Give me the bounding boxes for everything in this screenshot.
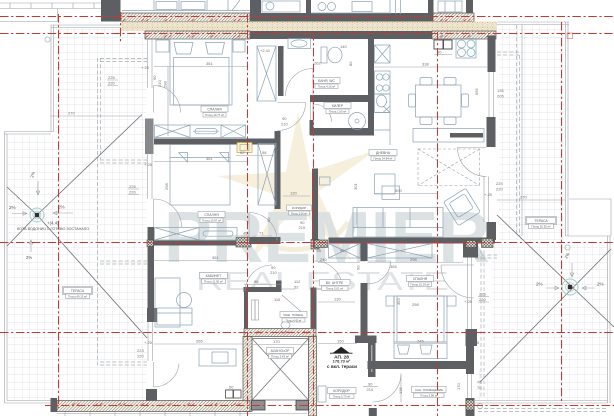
svg-text:210: 210 <box>299 225 306 230</box>
svg-text:270: 270 <box>520 195 527 200</box>
svg-text:+.25: +.25 <box>141 65 150 70</box>
svg-text:500: 500 <box>395 188 402 193</box>
svg-text:135: 135 <box>497 88 504 93</box>
svg-text:70: 70 <box>477 385 482 390</box>
svg-text:170: 170 <box>273 339 280 344</box>
svg-text:301: 301 <box>353 183 358 190</box>
svg-text:298: 298 <box>163 81 168 88</box>
svg-text:210: 210 <box>270 270 277 275</box>
svg-text:220: 220 <box>137 354 144 359</box>
svg-text:150: 150 <box>337 339 344 344</box>
svg-text:+.25: +.25 <box>144 340 153 345</box>
svg-text:ТЕРАСА: ТЕРАСА <box>534 219 548 223</box>
svg-text:2%: 2% <box>26 255 32 260</box>
svg-text:90: 90 <box>266 217 271 222</box>
svg-text:СПАЛНЯ: СПАЛНЯ <box>413 277 428 281</box>
svg-text:262: 262 <box>314 61 321 66</box>
svg-text:223: 223 <box>137 348 144 353</box>
svg-text:62: 62 <box>240 150 245 155</box>
svg-text:МАШ. ПОМЕЩ.: МАШ. ПОМЕЩ. <box>283 313 303 317</box>
svg-text:135: 135 <box>398 387 403 394</box>
svg-text:353: 353 <box>396 298 401 305</box>
svg-text:ДНЕВНА: ДНЕВНА <box>376 151 391 155</box>
svg-text:КИЛЕР: КИЛЕР <box>332 104 344 108</box>
svg-text:245: 245 <box>417 339 424 344</box>
svg-text:90: 90 <box>368 382 373 387</box>
svg-text:ВХ. АНТРЕ: ВХ. АНТРЕ <box>326 281 344 285</box>
svg-text:205: 205 <box>497 94 504 99</box>
svg-text:САН. ПОМЕЩЕНИЕ: САН. ПОМЕЩЕНИЕ <box>415 388 443 392</box>
svg-text:+.25: +.25 <box>464 299 473 304</box>
svg-text:+.25: +.25 <box>484 192 493 197</box>
svg-text:225: 225 <box>496 181 503 186</box>
svg-text:96: 96 <box>254 279 259 284</box>
svg-text:с вкл. тераси: с вкл. тераси <box>327 364 357 369</box>
svg-text:45: 45 <box>317 248 322 253</box>
svg-text:225: 225 <box>129 184 136 189</box>
svg-text:220: 220 <box>108 81 115 86</box>
svg-text:220: 220 <box>479 297 486 302</box>
svg-text:298: 298 <box>164 183 169 190</box>
svg-text:2%: 2% <box>597 282 604 287</box>
svg-text:25: 25 <box>475 340 480 345</box>
svg-text:270: 270 <box>68 111 75 116</box>
svg-text:Площ 4.15 м²: Площ 4.15 м² <box>318 85 335 89</box>
svg-text:Площ 24.84 м²: Площ 24.84 м² <box>374 157 393 161</box>
svg-text:298: 298 <box>410 257 417 262</box>
svg-text:+2.41: +2.41 <box>260 48 271 53</box>
svg-text:70: 70 <box>477 380 482 385</box>
svg-text:+(4.4): +(4.4) <box>47 221 59 226</box>
svg-text:СПАЛНЯ: СПАЛНЯ <box>204 213 219 217</box>
svg-text:170: 170 <box>456 383 461 390</box>
svg-text:265: 265 <box>196 339 203 344</box>
svg-text:Площ 10.77 м²: Площ 10.77 м² <box>205 113 224 117</box>
svg-text:120: 120 <box>290 191 297 196</box>
svg-text:298: 298 <box>412 302 419 307</box>
svg-text:90: 90 <box>340 248 345 253</box>
svg-text:50: 50 <box>229 385 234 390</box>
svg-text:361: 361 <box>206 61 213 66</box>
svg-text:Площ 5.01 м²: Площ 5.01 м² <box>326 287 343 291</box>
svg-text:Площ 4.42 м²: Площ 4.42 м² <box>286 320 302 323</box>
svg-text:220: 220 <box>129 190 136 195</box>
svg-text:80: 80 <box>348 61 353 66</box>
svg-text:365: 365 <box>390 264 397 269</box>
svg-text:210: 210 <box>281 122 288 127</box>
svg-text:Площ 3.98 м²: Площ 3.98 м² <box>420 394 437 398</box>
svg-text:595: 595 <box>474 88 479 95</box>
svg-text:116: 116 <box>274 297 281 302</box>
svg-text:БАНЯ, WC: БАНЯ, WC <box>318 79 335 83</box>
svg-text:Площ 5.73 м²: Площ 5.73 м² <box>333 395 350 399</box>
svg-text:КАБИНЕТ: КАБИНЕТ <box>206 274 222 278</box>
svg-text:Площ 10.97 м²: Площ 10.97 м² <box>202 219 221 223</box>
svg-text:71: 71 <box>259 231 264 236</box>
svg-text:2%: 2% <box>9 205 16 210</box>
svg-text:225: 225 <box>108 75 115 80</box>
svg-text:361: 361 <box>212 255 219 260</box>
svg-text:Площ 3.06 м²: Площ 3.06 м² <box>291 212 307 216</box>
svg-text:2%: 2% <box>536 282 543 287</box>
svg-text:КОТА ВОДОНИЧ С ГОТОВО ЗОСТАНАЛ: КОТА ВОДОНИЧ С ГОТОВО ЗОСТАНАЛО <box>17 227 89 231</box>
svg-text:+.25: +.25 <box>144 162 153 167</box>
svg-text:Площ 3.43 м²: Площ 3.43 м² <box>271 355 288 359</box>
svg-text:Площ 11.50 м²: Площ 11.50 м² <box>204 280 223 284</box>
svg-text:АСАНСЬОР: АСАНСЬОР <box>271 349 291 353</box>
svg-text:112: 112 <box>294 279 301 284</box>
svg-text:СПАЛНЯ: СПАЛНЯ <box>207 108 222 112</box>
svg-text:220: 220 <box>496 187 503 192</box>
svg-text:140: 140 <box>340 44 347 49</box>
svg-text:Площ 40.13 м²: Площ 40.13 м² <box>68 295 87 299</box>
svg-text:58: 58 <box>262 150 267 155</box>
svg-text:ТЕРАСА: ТЕРАСА <box>71 289 85 293</box>
svg-text:90: 90 <box>356 265 361 270</box>
svg-text:90: 90 <box>152 75 157 80</box>
svg-text:Площ 10.19 м²: Площ 10.19 м² <box>411 283 430 287</box>
svg-text:Площ 32.55 м²: Площ 32.55 м² <box>532 225 551 229</box>
svg-text:240: 240 <box>320 257 327 262</box>
svg-text:КОРИДОР: КОРИДОР <box>292 206 307 210</box>
svg-text:КОРИДОР: КОРИДОР <box>333 389 350 393</box>
svg-text:210: 210 <box>157 80 162 87</box>
svg-text:338: 338 <box>422 62 429 67</box>
svg-text:Площ 1.50 м²: Площ 1.50 м² <box>329 110 346 114</box>
svg-text:130: 130 <box>334 297 341 302</box>
svg-text:225: 225 <box>479 292 486 297</box>
svg-text:361: 361 <box>206 156 213 161</box>
svg-text:90: 90 <box>282 116 287 121</box>
svg-text:210: 210 <box>367 387 374 392</box>
svg-text:52: 52 <box>294 285 299 290</box>
